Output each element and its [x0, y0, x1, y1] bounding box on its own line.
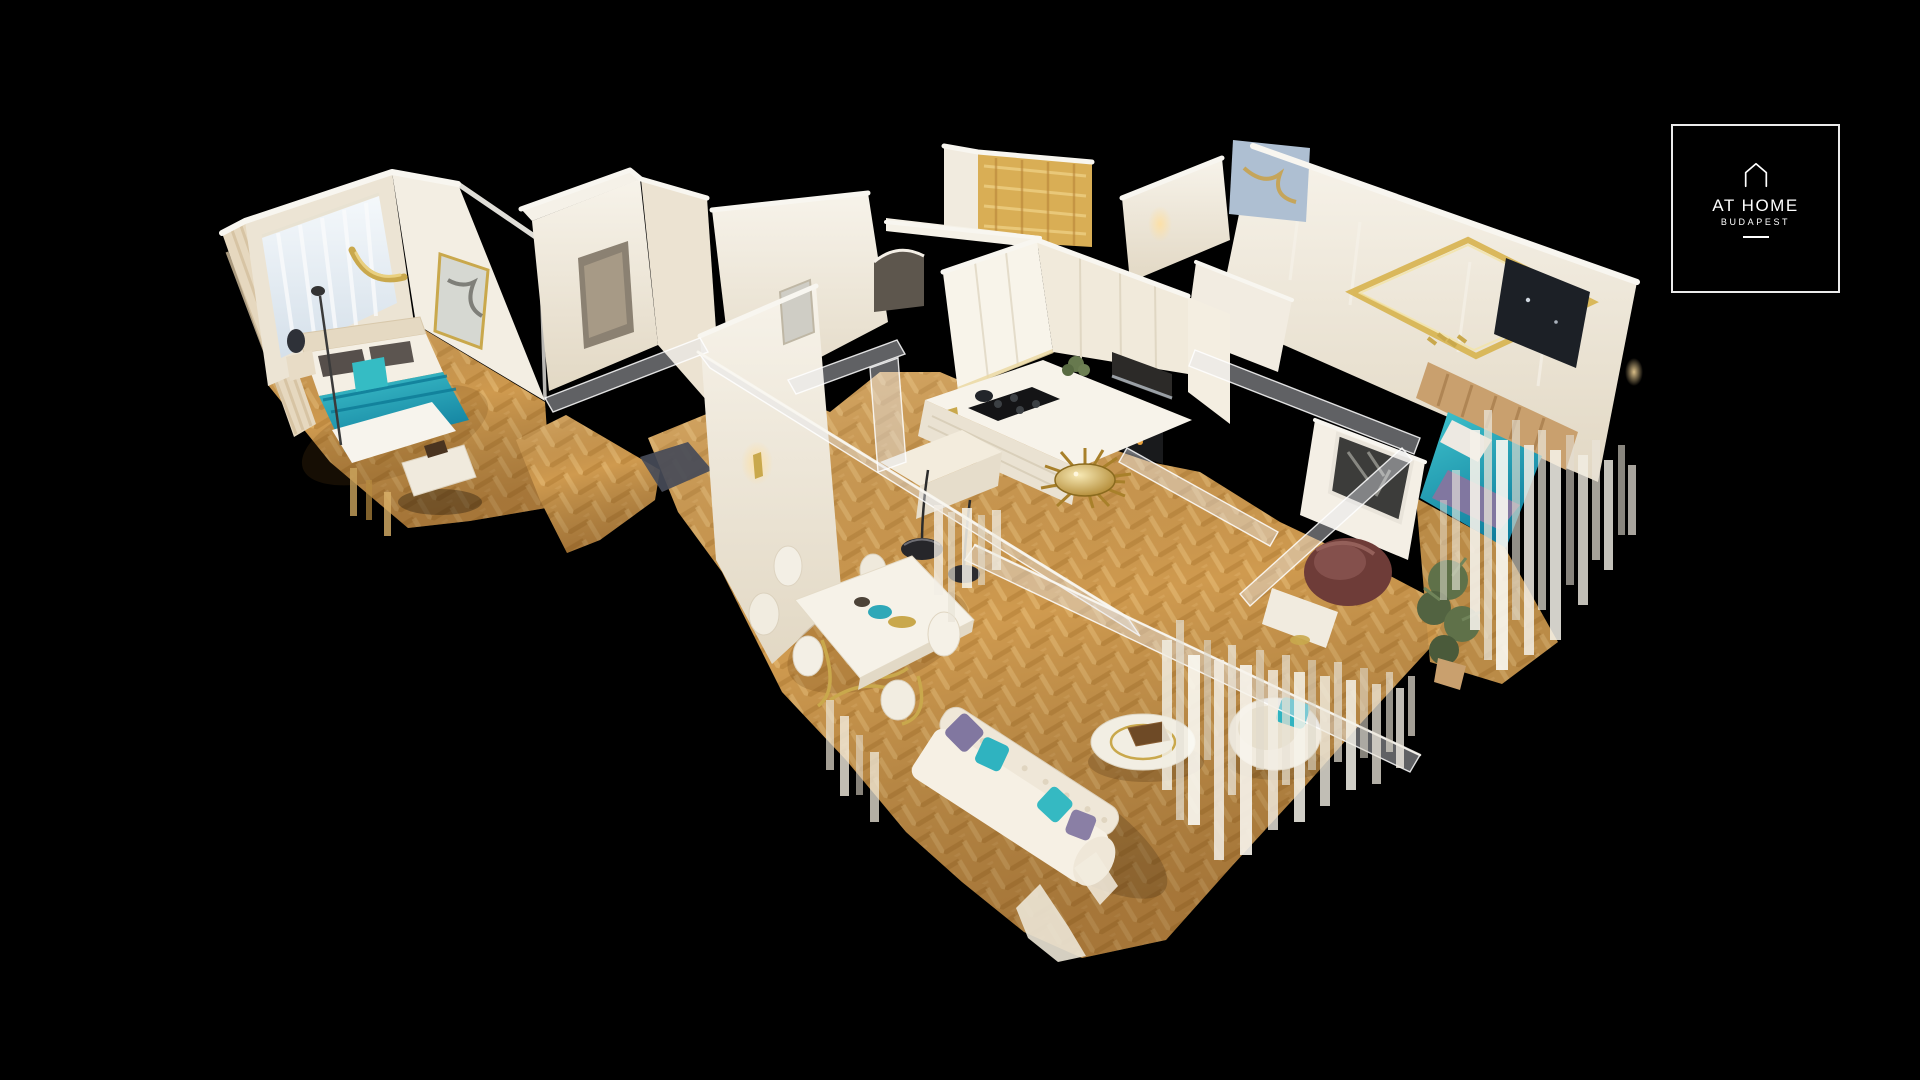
- gold-framed-art: [435, 254, 488, 348]
- viewer-stage: AT HOME BUDAPEST: [0, 0, 1920, 1080]
- decor-dark: [854, 597, 870, 607]
- athome-logo-badge: AT HOME BUDAPEST: [1671, 124, 1840, 293]
- dining-chair: [928, 612, 960, 656]
- house-outline-icon: [1741, 160, 1771, 190]
- logo-subtitle: BUDAPEST: [1721, 217, 1790, 227]
- pillow-teal: [352, 357, 388, 392]
- logo-title: AT HOME: [1712, 196, 1798, 216]
- dining-chair: [774, 546, 802, 586]
- dining-chair: [793, 636, 823, 676]
- dining-chair: [881, 680, 915, 720]
- decor-gold-tray: [888, 616, 916, 628]
- burgundy-armchair: [1304, 538, 1392, 606]
- entry-arch: [874, 250, 924, 312]
- kettle: [975, 390, 993, 402]
- dining-chair: [749, 593, 779, 635]
- logo-underline: [1743, 236, 1769, 238]
- dollhouse-viewport[interactable]: [0, 0, 1920, 1080]
- decor-teal-bowl: [868, 605, 892, 619]
